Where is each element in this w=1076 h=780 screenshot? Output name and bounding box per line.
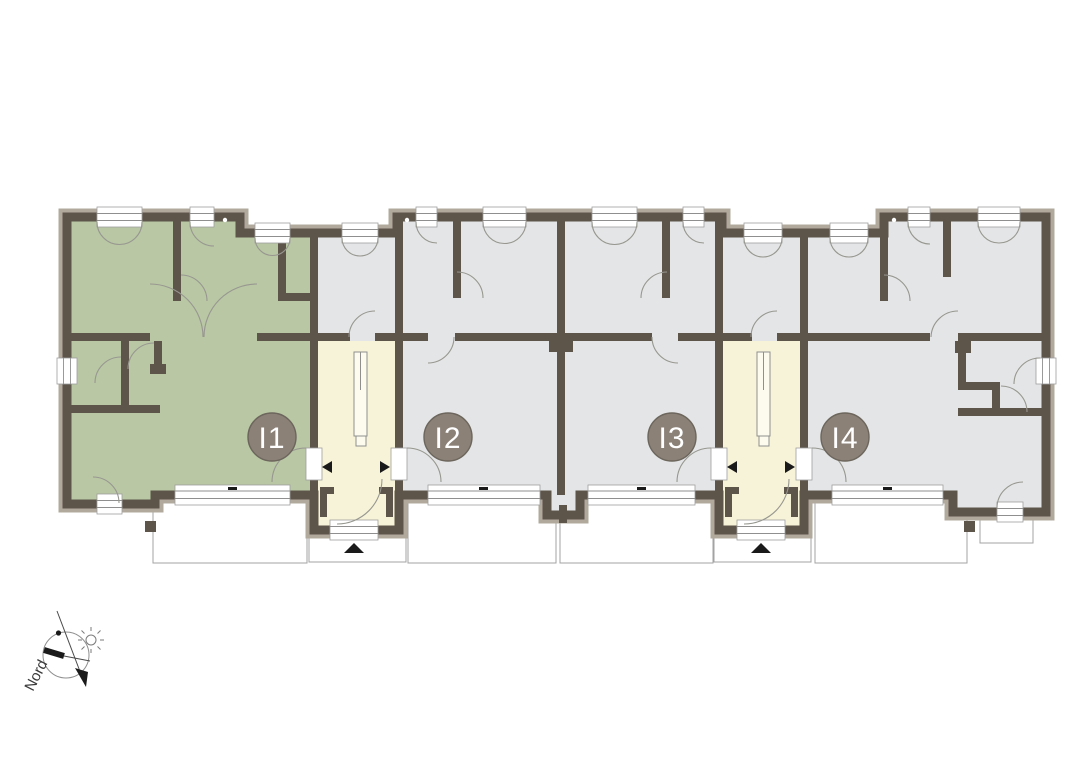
terrace-i4 bbox=[815, 503, 967, 563]
terrace-door-i1 bbox=[175, 485, 290, 505]
terraces bbox=[153, 500, 1033, 563]
terrace-i1 bbox=[153, 500, 307, 563]
window bbox=[255, 223, 290, 243]
unit-badge-i2[interactable]: I2 bbox=[424, 413, 472, 461]
sun-icon bbox=[78, 627, 104, 653]
compass-bar-line bbox=[64, 656, 90, 661]
window bbox=[57, 358, 77, 384]
entrance-door-1 bbox=[330, 520, 378, 540]
unit-badge-i4[interactable]: I4 bbox=[821, 413, 869, 461]
stairwell-1-stair bbox=[354, 352, 367, 446]
compass-bar bbox=[44, 650, 64, 656]
floor-plan: I1 I2 I3 I4 Nord bbox=[0, 0, 1076, 780]
entrance-door-2 bbox=[737, 520, 785, 540]
window bbox=[190, 207, 214, 227]
compass-arrowhead bbox=[75, 668, 88, 687]
unit-area-i2[interactable] bbox=[399, 221, 557, 491]
stairwell-2-stair bbox=[757, 352, 770, 446]
unit-area-i4[interactable] bbox=[808, 221, 1042, 508]
unit-badge-label: I4 bbox=[831, 422, 858, 455]
window bbox=[342, 223, 378, 243]
compass: Nord bbox=[21, 611, 104, 694]
window bbox=[97, 207, 142, 227]
compass-label: Nord bbox=[21, 657, 51, 694]
unit-badge-label: I1 bbox=[258, 422, 285, 455]
unit-badge-label: I3 bbox=[658, 422, 685, 455]
unit-badge-i3[interactable]: I3 bbox=[648, 413, 696, 461]
window bbox=[744, 223, 782, 243]
unit-badge-label: I2 bbox=[434, 422, 461, 455]
terrace-i2 bbox=[408, 502, 556, 563]
unit-badge-i1[interactable]: I1 bbox=[248, 413, 296, 461]
compass-north-dot bbox=[56, 630, 61, 635]
